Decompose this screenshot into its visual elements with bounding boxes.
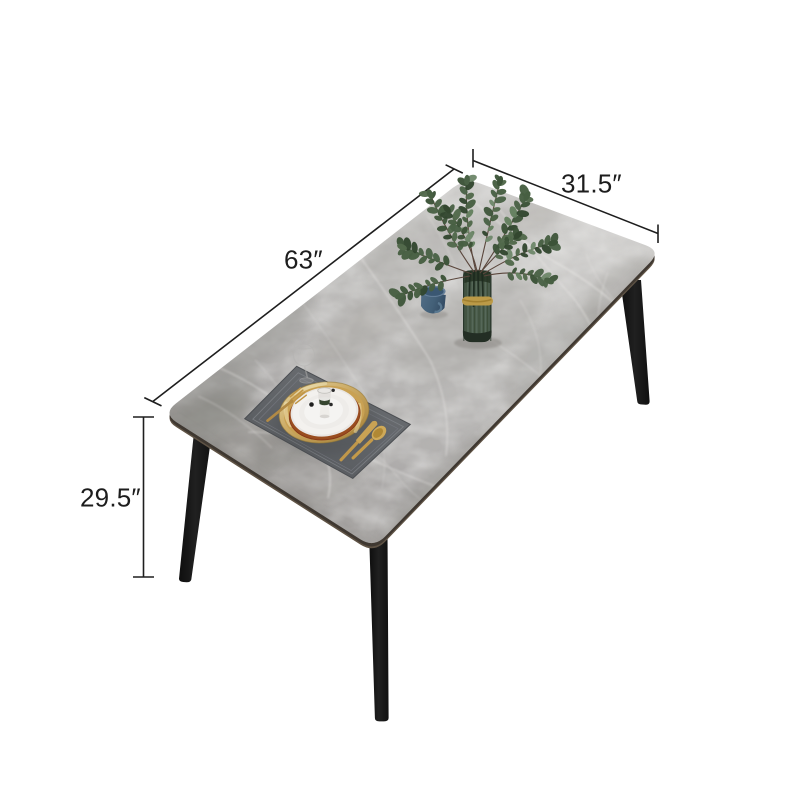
svg-text:63″: 63″: [284, 245, 323, 275]
svg-text:31.5″: 31.5″: [561, 169, 622, 199]
svg-text:29.5″: 29.5″: [80, 483, 141, 513]
